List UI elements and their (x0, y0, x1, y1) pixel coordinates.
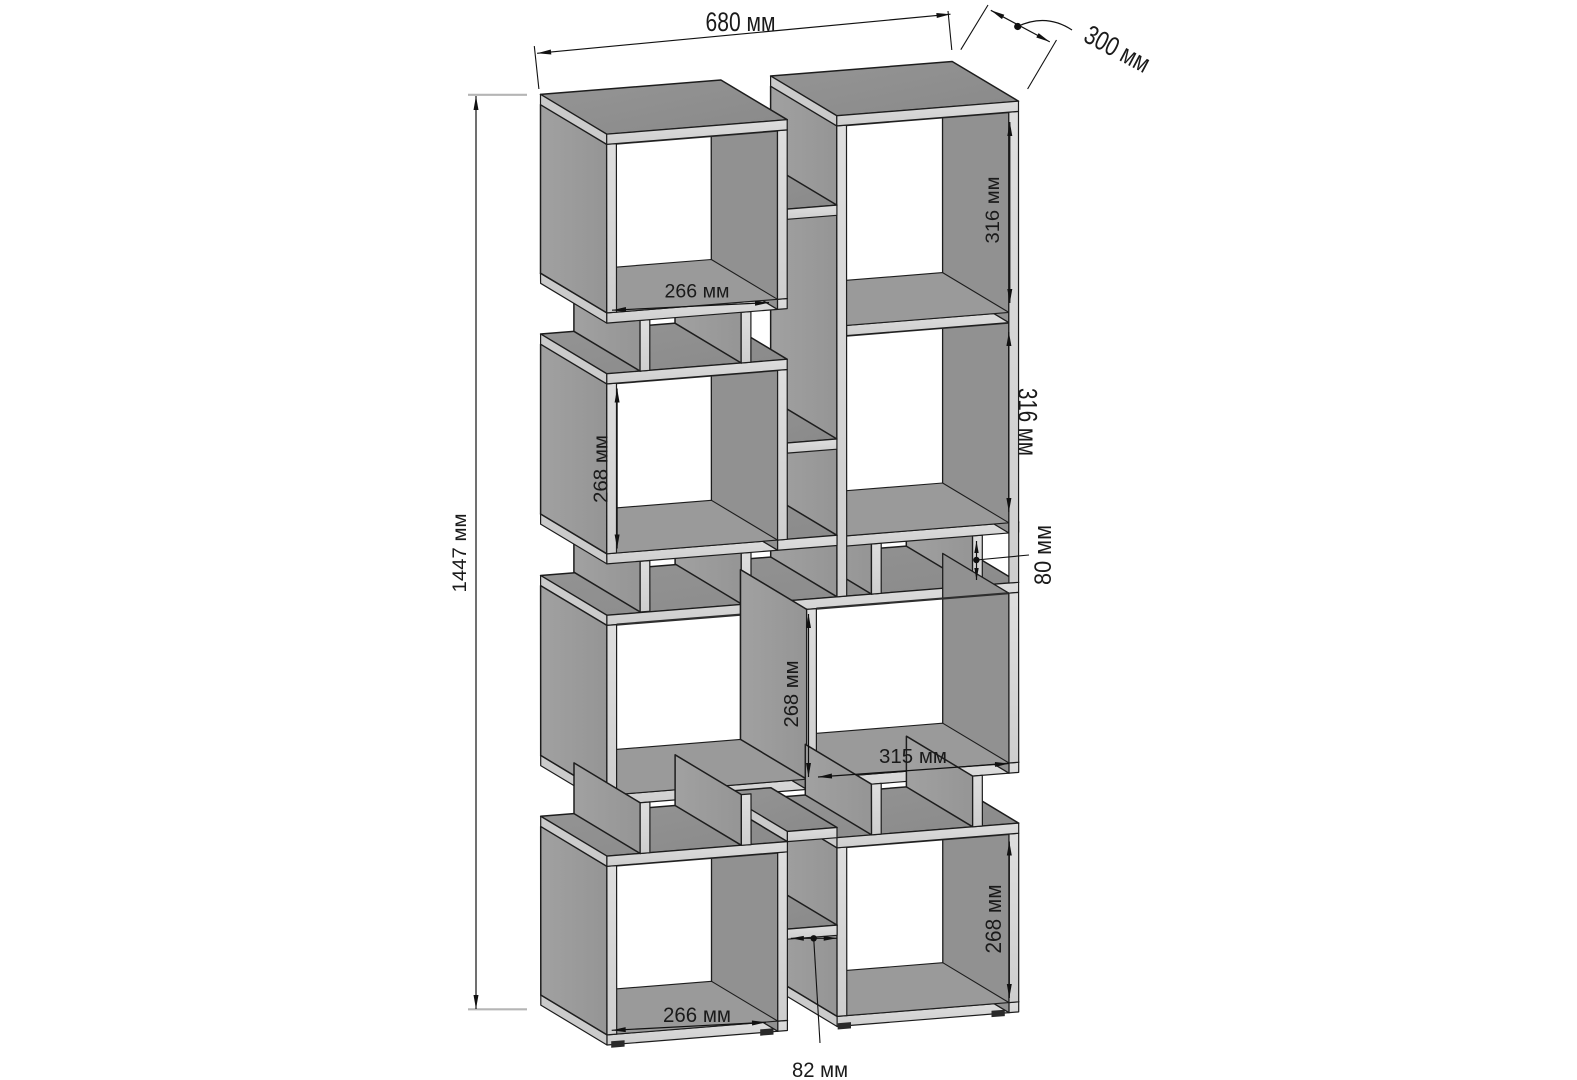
svg-text:1447 мм: 1447 мм (450, 514, 471, 593)
svg-text:268 мм: 268 мм (591, 435, 613, 503)
svg-text:268 мм: 268 мм (981, 885, 1006, 954)
svg-text:82 мм: 82 мм (792, 1059, 848, 1080)
svg-text:266 мм: 266 мм (665, 281, 730, 303)
svg-text:316 мм: 316 мм (1013, 388, 1043, 456)
svg-text:680 мм: 680 мм (706, 7, 776, 37)
svg-text:80 мм: 80 мм (1030, 525, 1057, 585)
svg-text:268 мм: 268 мм (780, 661, 803, 728)
svg-text:266 мм: 266 мм (663, 1003, 731, 1027)
svg-text:316 мм: 316 мм (983, 177, 1004, 244)
svg-text:315 мм: 315 мм (879, 746, 947, 768)
